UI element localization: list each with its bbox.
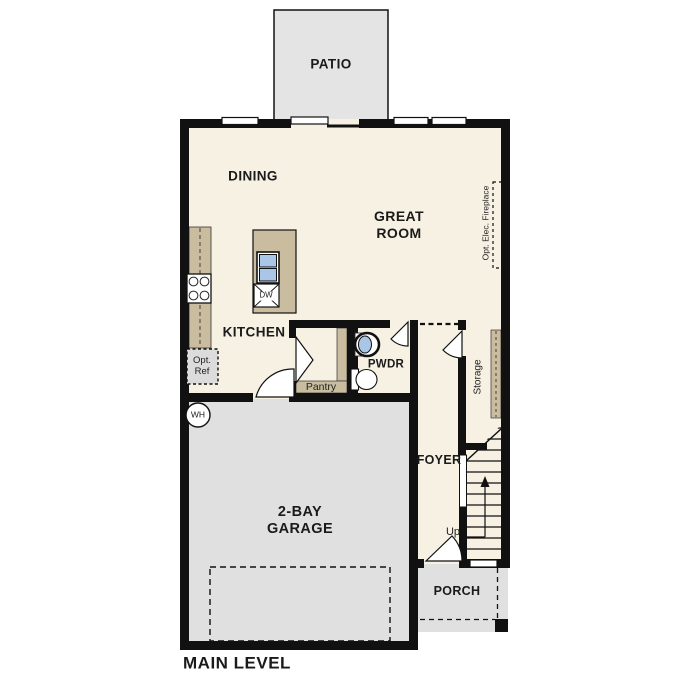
opt-fireplace-label: Opt. Elec. Fireplace	[481, 186, 490, 261]
kitchen-label: KITCHEN	[223, 326, 286, 341]
island-sink-fixture	[257, 252, 279, 283]
opt-ref-label-line1: Opt.	[193, 355, 211, 366]
dishwasher-label: DW	[258, 292, 273, 301]
opt-ref-label: Opt. Ref	[193, 355, 211, 377]
pantry-label: Pantry	[306, 382, 336, 394]
porch-post	[495, 619, 508, 632]
floorplan-drawing	[0, 0, 687, 687]
storage-shelf	[491, 330, 501, 418]
pwdr-label: PWDR	[368, 359, 404, 372]
great-room-window-2	[432, 118, 466, 125]
dining-window	[222, 118, 258, 125]
range-fixture	[187, 274, 211, 303]
plan-title: MAIN LEVEL	[183, 655, 291, 674]
storage-label: Storage	[473, 359, 484, 394]
dining-label: DINING	[228, 170, 278, 185]
great-room-window-1	[394, 118, 428, 125]
floorplan-canvas: PATIO DINING GREAT ROOM KITCHEN PWDR Pan…	[0, 0, 687, 687]
porch-label: PORCH	[434, 585, 481, 599]
opt-ref-label-line2: Ref	[193, 366, 211, 377]
toilet-fixture	[351, 369, 377, 390]
foyer-label: FOYER	[417, 454, 462, 468]
patio-label: PATIO	[310, 58, 351, 73]
porch-window	[470, 560, 497, 567]
up-label: Up	[446, 526, 460, 538]
water-heater-label: WH	[191, 410, 205, 419]
great-room-label-line1: GREAT	[374, 208, 424, 225]
garage-label-line1: 2-BAY	[267, 504, 333, 521]
great-room-label-line2: ROOM	[374, 225, 424, 242]
great-room-label: GREAT ROOM	[374, 208, 424, 242]
garage-label: 2-BAY GARAGE	[267, 504, 333, 538]
pwdr-sink-fixture	[355, 333, 379, 356]
garage-label-line2: GARAGE	[267, 521, 333, 538]
